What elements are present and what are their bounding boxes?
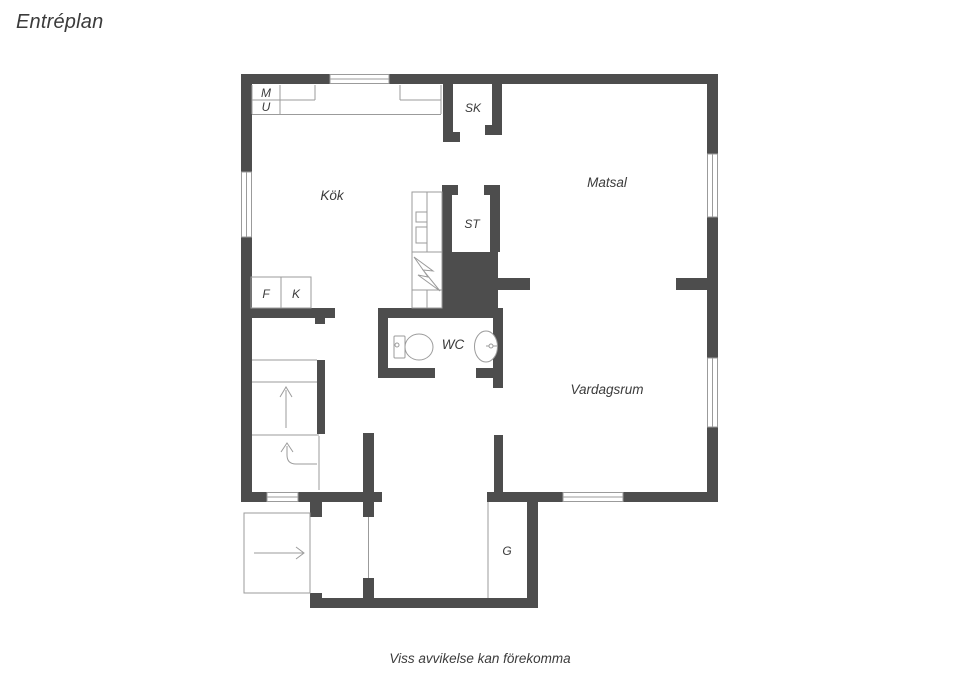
window bbox=[708, 154, 718, 217]
kitchen-tall-units bbox=[412, 192, 442, 308]
closet-label-st: ST bbox=[464, 217, 481, 231]
room-label-matsal: Matsal bbox=[587, 175, 628, 190]
room-label-wc: WC bbox=[442, 337, 465, 352]
wall-segment bbox=[310, 502, 322, 517]
window bbox=[267, 493, 298, 502]
wall-segment bbox=[707, 74, 718, 154]
disclaimer-text: Viss avvikelse kan förekomma bbox=[0, 651, 960, 666]
wall-segment bbox=[363, 433, 374, 517]
wall-segment bbox=[378, 308, 503, 318]
chimney-block bbox=[442, 252, 498, 308]
wall-segment bbox=[241, 74, 252, 172]
wall-segment bbox=[494, 435, 503, 492]
stairs-turn-arrow bbox=[281, 443, 317, 464]
wall-segment bbox=[241, 237, 252, 502]
electrical-panel-icon bbox=[414, 257, 440, 291]
wall-segment bbox=[707, 217, 718, 358]
appliance-label-f: F bbox=[262, 287, 270, 301]
window bbox=[330, 75, 389, 84]
entry-arrow bbox=[254, 547, 304, 559]
window bbox=[708, 358, 718, 427]
wall-segment bbox=[378, 308, 388, 378]
stairs bbox=[252, 360, 319, 490]
wall-segment bbox=[317, 360, 325, 434]
wall-segment bbox=[487, 492, 563, 502]
kitchen-counter bbox=[252, 85, 441, 115]
wall-segment bbox=[498, 278, 530, 290]
wall-segment bbox=[241, 308, 335, 318]
wall-segment bbox=[241, 492, 267, 502]
closet-label-g: G bbox=[502, 544, 511, 558]
wall-segment bbox=[527, 502, 538, 608]
wall-segment bbox=[443, 132, 460, 142]
wall-segment bbox=[389, 74, 718, 84]
wall-segment bbox=[442, 185, 452, 252]
appliance-label-m: M bbox=[261, 86, 271, 100]
stove-icon bbox=[416, 212, 427, 222]
wall-segment bbox=[623, 492, 718, 502]
wall-segment bbox=[490, 185, 500, 252]
wall-segment bbox=[388, 368, 435, 378]
entry-hall-walls bbox=[310, 433, 538, 608]
window bbox=[563, 493, 623, 502]
appliance-label-k: K bbox=[292, 287, 301, 301]
wall-segment bbox=[676, 278, 708, 290]
room-label-kok: Kök bbox=[320, 188, 345, 203]
wall-segment bbox=[707, 427, 718, 502]
wall-segment bbox=[241, 74, 330, 84]
wall-segment bbox=[363, 578, 374, 608]
oven-icon bbox=[416, 227, 427, 243]
floor-plan-canvas: Kök Matsal Vardagsrum WC SK ST G M U F K bbox=[0, 0, 960, 679]
stairs-up-arrow bbox=[280, 387, 292, 428]
room-label-vardagsrum: Vardagsrum bbox=[570, 382, 643, 397]
wall-segment bbox=[310, 598, 538, 608]
toilet-icon bbox=[394, 334, 433, 360]
wall-segment bbox=[485, 125, 502, 135]
wall-segment bbox=[315, 318, 325, 324]
sink-icon bbox=[475, 331, 499, 362]
window bbox=[242, 172, 252, 237]
closet-label-sk: SK bbox=[465, 101, 482, 115]
appliance-label-u: U bbox=[262, 100, 271, 114]
appliance-box-fk bbox=[251, 277, 311, 308]
